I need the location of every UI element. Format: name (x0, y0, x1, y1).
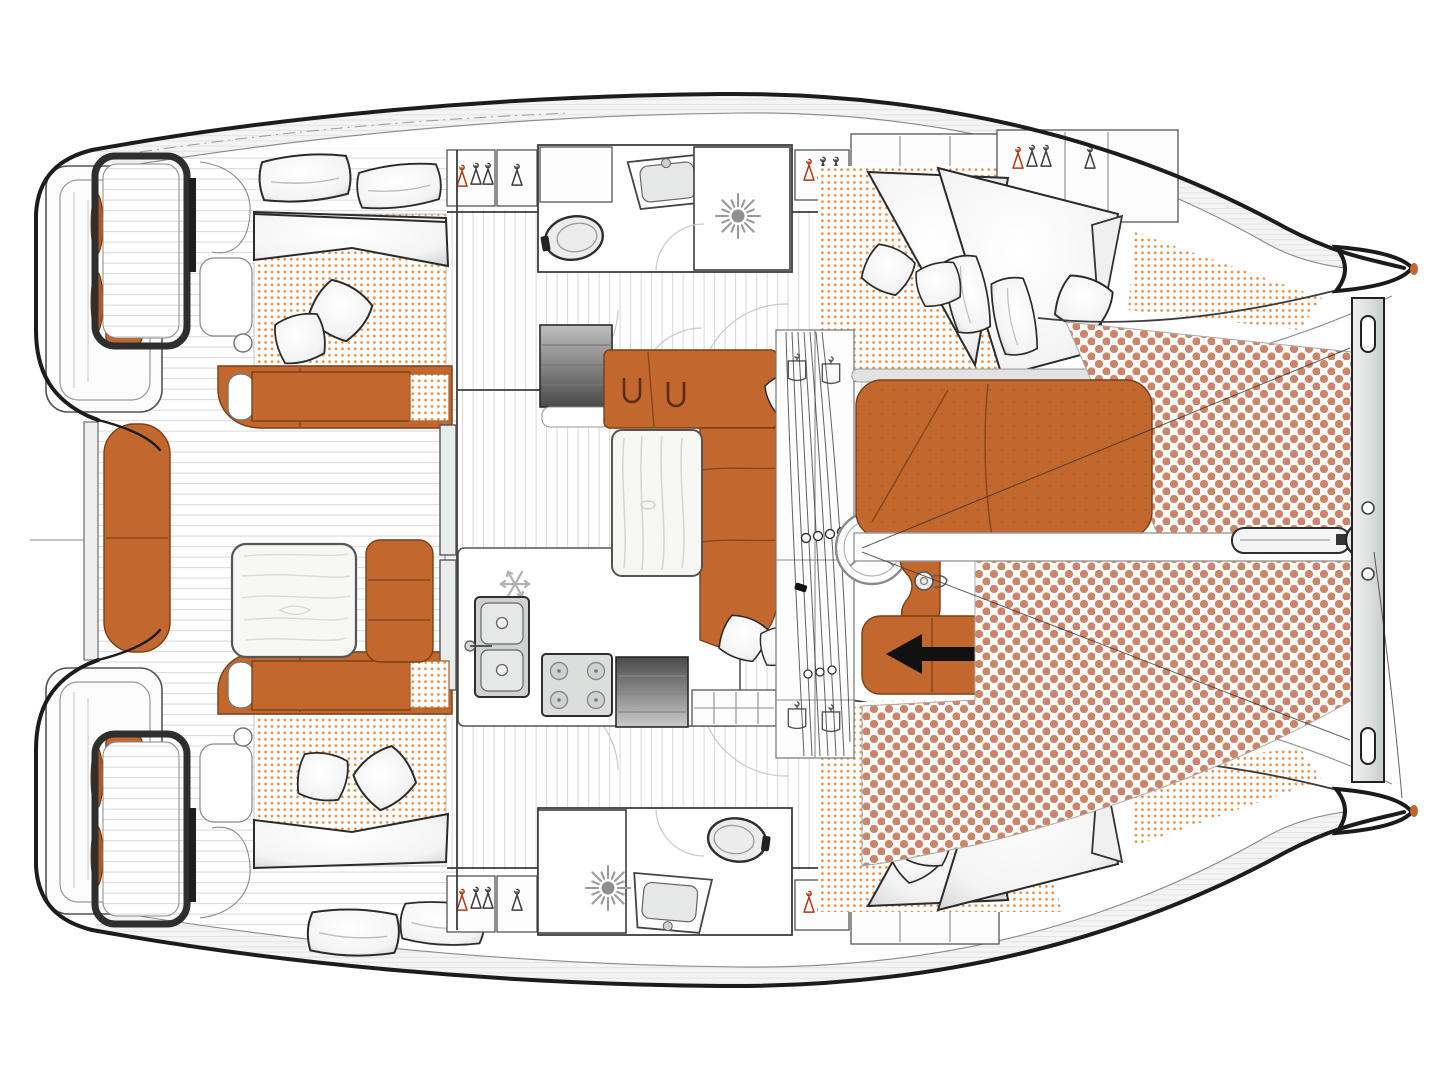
saloon-table (612, 430, 702, 576)
shower-drain-icon (716, 194, 760, 238)
foredeck-sunpad (856, 380, 1152, 538)
starboard-bathroom (538, 808, 792, 935)
saloon-sideboard (604, 350, 777, 428)
port-bathroom (538, 145, 792, 272)
port-wardrobe (447, 150, 537, 206)
galley-lockers (692, 690, 776, 726)
cockpit-table (232, 544, 356, 657)
cockpit-corner-bench (366, 540, 433, 662)
stairs-starboard (616, 657, 688, 727)
shower-drain-icon (586, 866, 630, 910)
cockpit-bench-starboard (228, 661, 449, 710)
galley-double-sink (465, 597, 529, 697)
stairs-port (540, 325, 612, 427)
catamaran-floor-plan (0, 0, 1440, 1080)
aft-sunbed (104, 424, 170, 652)
forward-crossbeam (1352, 298, 1384, 782)
aft-crossbar (30, 422, 98, 660)
galley-stove (542, 654, 612, 716)
cockpit-bench-port (228, 372, 449, 421)
starboard-wardrobe (447, 876, 537, 932)
port-shower (694, 147, 790, 270)
starboard-shower (538, 810, 626, 933)
bathroom-sink (629, 873, 711, 934)
floor-plan-canvas (0, 0, 1440, 1080)
